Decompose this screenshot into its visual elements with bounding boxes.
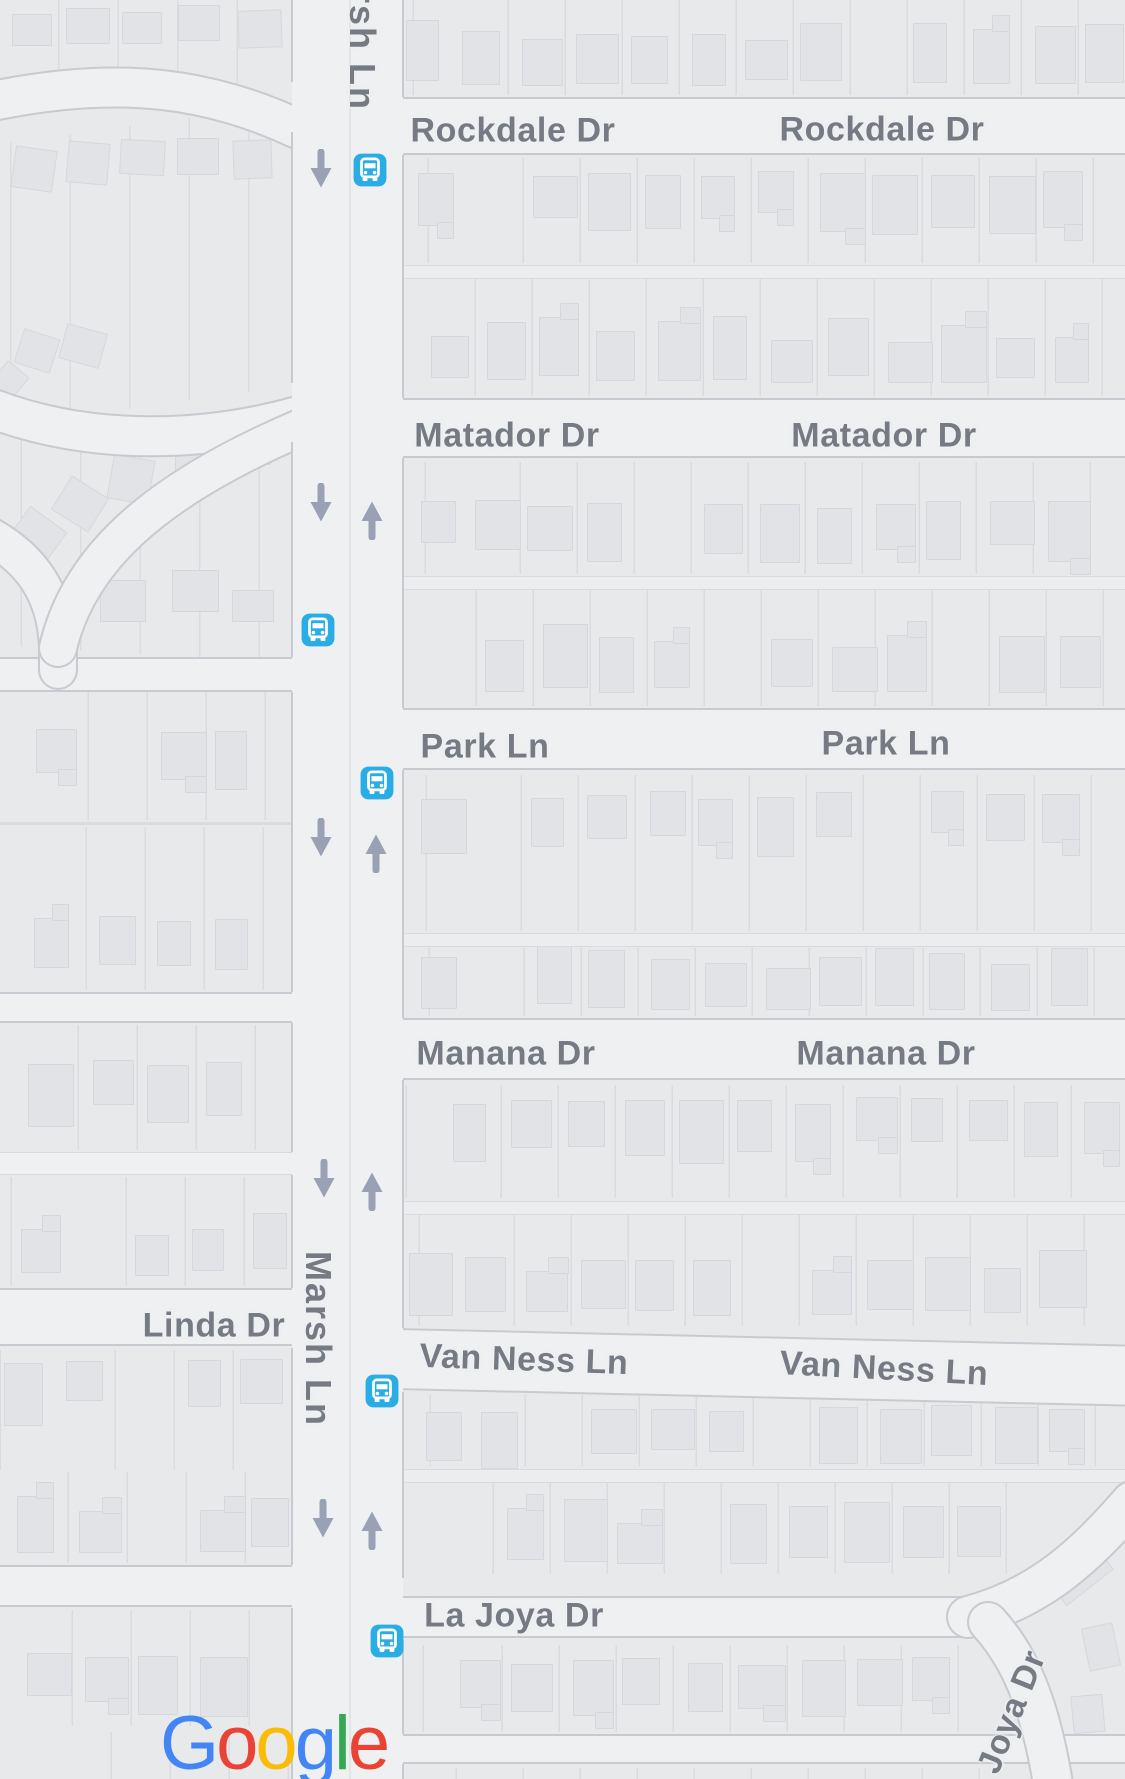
building-footprint bbox=[771, 639, 813, 687]
east-parcel-row bbox=[403, 948, 1125, 1016]
building-footprint bbox=[1039, 1250, 1087, 1308]
building-footprint bbox=[188, 1360, 221, 1407]
building-footprint bbox=[1062, 839, 1080, 856]
building-footprint bbox=[99, 916, 136, 965]
building-footprint bbox=[932, 1697, 950, 1714]
building-footprint bbox=[1035, 26, 1076, 84]
building-footprint bbox=[817, 508, 852, 565]
building-footprint bbox=[431, 336, 469, 378]
street-label-matador-dr: Matador Dr bbox=[414, 417, 599, 456]
building-footprint bbox=[178, 5, 220, 41]
building-footprint bbox=[857, 1659, 903, 1707]
building-footprint bbox=[36, 1482, 54, 1499]
building-footprint bbox=[175, 437, 225, 472]
building-footprint bbox=[4, 1363, 42, 1426]
street-label-rsh-ln: rsh Ln bbox=[341, 0, 383, 111]
building-footprint bbox=[907, 621, 926, 638]
building-footprint bbox=[844, 1502, 890, 1563]
building-footprint bbox=[157, 921, 190, 965]
building-footprint bbox=[673, 627, 690, 644]
building-footprint bbox=[560, 303, 579, 320]
building-footprint bbox=[28, 1064, 74, 1127]
building-footprint bbox=[232, 590, 274, 622]
road-casing bbox=[291, 1348, 293, 1565]
building-footprint bbox=[58, 769, 78, 786]
building-footprint bbox=[421, 957, 457, 1009]
west-parcel-row bbox=[0, 1472, 292, 1563]
building-footprint bbox=[828, 318, 869, 376]
building-footprint bbox=[617, 1523, 663, 1563]
building-footprint bbox=[996, 338, 1034, 378]
building-footprint bbox=[1055, 337, 1088, 383]
building-footprint bbox=[645, 175, 681, 229]
building-footprint bbox=[984, 1268, 1021, 1312]
building-footprint bbox=[912, 1657, 950, 1700]
building-footprint bbox=[122, 12, 162, 44]
building-footprint bbox=[453, 1104, 486, 1162]
building-footprint bbox=[931, 791, 964, 832]
building-footprint bbox=[475, 500, 521, 550]
building-footprint bbox=[813, 1158, 830, 1175]
building-footprint bbox=[1049, 1409, 1085, 1453]
building-footprint bbox=[929, 953, 965, 1010]
street-label-rockdale-dr: Rockdale Dr bbox=[779, 111, 984, 150]
google-logo-letter: o bbox=[255, 1701, 294, 1779]
road-casing bbox=[402, 1764, 404, 1779]
building-footprint bbox=[757, 797, 794, 857]
building-footprint bbox=[925, 1257, 971, 1311]
building-footprint bbox=[522, 39, 563, 86]
west-parcel-row bbox=[0, 1177, 292, 1286]
lane-centerline bbox=[349, 0, 351, 1779]
east-parcel-row bbox=[403, 158, 1125, 263]
building-footprint bbox=[969, 1100, 1008, 1141]
building-footprint bbox=[795, 1104, 831, 1163]
building-footprint bbox=[526, 1494, 544, 1511]
building-footprint bbox=[587, 795, 627, 839]
building-footprint bbox=[800, 23, 843, 82]
building-footprint bbox=[65, 140, 111, 186]
road-casing bbox=[291, 442, 293, 657]
road-segment bbox=[0, 657, 296, 692]
building-footprint bbox=[999, 636, 1045, 693]
building-footprint bbox=[856, 1097, 899, 1140]
building-footprint bbox=[845, 228, 867, 245]
building-footprint bbox=[948, 829, 964, 846]
building-footprint bbox=[692, 34, 726, 86]
building-footprint bbox=[897, 546, 916, 563]
direction-arrow-down bbox=[312, 1159, 336, 1199]
building-footprint bbox=[771, 340, 812, 383]
building-footprint bbox=[237, 9, 282, 49]
building-footprint bbox=[10, 145, 57, 192]
building-footprint bbox=[588, 173, 631, 231]
building-footprint bbox=[177, 138, 219, 175]
building-footprint bbox=[911, 1098, 943, 1142]
building-footprint bbox=[533, 176, 578, 219]
building-footprint bbox=[587, 503, 621, 563]
google-logo-letter: g bbox=[295, 1701, 334, 1779]
building-footprint bbox=[21, 1229, 60, 1273]
building-footprint bbox=[462, 31, 501, 85]
building-footprint bbox=[812, 1270, 853, 1314]
building-footprint bbox=[1048, 501, 1092, 563]
building-footprint bbox=[819, 957, 861, 1006]
building-footprint bbox=[1073, 323, 1089, 340]
east-parcel-row bbox=[403, 1480, 1010, 1574]
building-footprint bbox=[1081, 1622, 1121, 1672]
building-footprint bbox=[758, 171, 793, 213]
east-parcel-row bbox=[403, 0, 1125, 95]
building-footprint bbox=[819, 1407, 858, 1464]
street-label-van-ness-ln: Van Ness Ln bbox=[419, 1337, 629, 1383]
building-footprint bbox=[872, 175, 918, 235]
building-footprint bbox=[485, 640, 524, 692]
map-canvas[interactable]: Rockdale DrRockdale DrMatador DrMatador … bbox=[0, 0, 1125, 1779]
building-footprint bbox=[766, 968, 811, 1010]
block-alley bbox=[403, 933, 1125, 947]
building-footprint bbox=[437, 222, 454, 239]
building-footprint bbox=[426, 1412, 462, 1461]
building-footprint bbox=[635, 1260, 674, 1311]
road-casing bbox=[402, 0, 404, 97]
building-footprint bbox=[658, 321, 700, 381]
direction-arrow-down bbox=[311, 1499, 335, 1539]
building-footprint bbox=[576, 34, 619, 85]
building-footprint bbox=[599, 637, 634, 693]
street-label-la-joya-dr: La Joya Dr bbox=[424, 1597, 604, 1636]
west-parcel-row bbox=[0, 692, 292, 820]
road-casing bbox=[291, 132, 293, 383]
building-footprint bbox=[85, 1657, 129, 1702]
building-footprint bbox=[1024, 1102, 1058, 1158]
building-footprint bbox=[507, 1508, 544, 1560]
building-footprint bbox=[651, 959, 690, 1010]
building-footprint bbox=[941, 325, 987, 383]
building-footprint bbox=[192, 1229, 224, 1270]
road-segment bbox=[0, 992, 296, 1023]
road-segment bbox=[0, 1565, 296, 1607]
back-lot-line bbox=[0, 822, 292, 825]
building-footprint bbox=[108, 1698, 129, 1715]
building-footprint bbox=[903, 1506, 944, 1558]
building-footprint bbox=[119, 139, 166, 176]
road-casing bbox=[291, 1023, 293, 1152]
building-footprint bbox=[973, 29, 1009, 84]
direction-arrow-up bbox=[360, 1171, 384, 1211]
building-footprint bbox=[688, 1663, 723, 1712]
block-alley bbox=[403, 265, 1125, 279]
building-footprint bbox=[539, 317, 579, 377]
building-footprint bbox=[511, 1100, 552, 1148]
building-footprint bbox=[66, 1361, 102, 1401]
building-footprint bbox=[698, 799, 733, 846]
building-footprint bbox=[1070, 558, 1091, 575]
building-footprint bbox=[719, 215, 735, 232]
building-footprint bbox=[887, 635, 927, 693]
building-footprint bbox=[931, 175, 975, 227]
street-label-matador-dr: Matador Dr bbox=[791, 417, 976, 456]
building-footprint bbox=[709, 1411, 744, 1453]
building-footprint bbox=[816, 792, 852, 837]
building-footprint bbox=[206, 1062, 242, 1116]
building-footprint bbox=[548, 1257, 568, 1274]
building-footprint bbox=[991, 964, 1030, 1011]
building-footprint bbox=[913, 23, 947, 83]
street-label-linda-dr: Linda Dr bbox=[143, 1307, 286, 1346]
building-footprint bbox=[832, 647, 878, 692]
building-footprint bbox=[820, 173, 866, 231]
google-logo-letter: G bbox=[160, 1701, 216, 1779]
google-logo-letter: o bbox=[216, 1701, 255, 1779]
building-footprint bbox=[224, 1496, 246, 1513]
building-footprint bbox=[487, 322, 527, 380]
building-footprint bbox=[730, 1504, 766, 1564]
building-footprint bbox=[705, 963, 747, 1007]
building-footprint bbox=[460, 1660, 501, 1708]
east-parcel-row bbox=[403, 1645, 995, 1732]
building-footprint bbox=[680, 307, 700, 324]
building-footprint bbox=[888, 342, 933, 383]
building-footprint bbox=[622, 1658, 659, 1705]
building-footprint bbox=[79, 1511, 123, 1554]
building-footprint bbox=[989, 176, 1036, 234]
building-footprint bbox=[526, 1271, 568, 1313]
street-label-manana-dr: Manana Dr bbox=[416, 1035, 595, 1074]
building-footprint bbox=[465, 1257, 506, 1311]
west-parcel-row bbox=[0, 827, 292, 990]
building-footprint bbox=[596, 331, 634, 381]
building-footprint bbox=[693, 1260, 731, 1316]
building-footprint bbox=[481, 1412, 518, 1469]
building-footprint bbox=[995, 1407, 1038, 1464]
building-footprint bbox=[591, 1409, 637, 1454]
east-parcel-row bbox=[403, 1768, 1040, 1779]
west-parcel-row bbox=[0, 1350, 292, 1470]
direction-arrow-down bbox=[309, 149, 333, 189]
building-footprint bbox=[654, 641, 690, 688]
building-footprint bbox=[537, 946, 572, 1004]
building-footprint bbox=[650, 791, 687, 836]
google-logo[interactable]: Google bbox=[160, 1706, 387, 1779]
building-footprint bbox=[957, 1506, 1001, 1557]
building-footprint bbox=[251, 1498, 289, 1547]
building-footprint bbox=[716, 842, 733, 859]
building-footprint bbox=[66, 8, 110, 44]
building-footprint bbox=[880, 1409, 922, 1464]
bus-stop-icon[interactable] bbox=[364, 1373, 400, 1409]
building-footprint bbox=[12, 14, 52, 46]
building-footprint bbox=[409, 1253, 453, 1316]
building-footprint bbox=[100, 580, 146, 622]
east-parcel-row bbox=[403, 775, 1125, 931]
road-casing bbox=[291, 692, 293, 992]
building-footprint bbox=[185, 776, 207, 793]
building-footprint bbox=[745, 40, 789, 80]
building-footprint bbox=[543, 624, 588, 688]
building-footprint bbox=[200, 1510, 247, 1552]
building-footprint bbox=[789, 1506, 828, 1557]
building-footprint bbox=[253, 1213, 288, 1268]
building-footprint bbox=[588, 950, 625, 1008]
building-footprint bbox=[679, 1100, 724, 1164]
building-footprint bbox=[527, 506, 573, 551]
building-footprint bbox=[564, 1499, 608, 1562]
building-footprint bbox=[992, 15, 1009, 32]
building-footprint bbox=[738, 1665, 785, 1709]
building-footprint bbox=[421, 799, 467, 855]
bus-stop-icon[interactable] bbox=[359, 765, 395, 801]
building-footprint bbox=[147, 1065, 189, 1123]
building-footprint bbox=[1103, 1150, 1120, 1167]
building-footprint bbox=[878, 1137, 898, 1154]
building-footprint bbox=[704, 504, 743, 554]
direction-arrow-down bbox=[309, 818, 333, 858]
bus-stop-icon[interactable] bbox=[369, 1623, 405, 1659]
building-footprint bbox=[568, 1101, 605, 1147]
building-footprint bbox=[102, 1497, 123, 1514]
building-footprint bbox=[161, 732, 207, 780]
bus-stop-icon[interactable] bbox=[352, 152, 388, 188]
building-footprint bbox=[17, 1496, 54, 1553]
street-label-manana-dr: Manana Dr bbox=[796, 1035, 975, 1074]
bus-stop-icon[interactable] bbox=[300, 612, 336, 648]
building-footprint bbox=[595, 1712, 614, 1729]
building-footprint bbox=[1084, 1102, 1120, 1154]
building-footprint bbox=[240, 1359, 283, 1404]
building-footprint bbox=[42, 1215, 61, 1232]
west-parcel-row bbox=[0, 1025, 292, 1150]
road-segment bbox=[0, 1152, 296, 1175]
east-parcel-row bbox=[403, 590, 1125, 706]
building-footprint bbox=[737, 1100, 772, 1152]
east-parcel-row bbox=[403, 276, 1125, 396]
building-footprint bbox=[965, 311, 987, 328]
building-footprint bbox=[1085, 24, 1123, 84]
building-footprint bbox=[235, 433, 271, 465]
direction-arrow-up bbox=[360, 1510, 384, 1550]
building-footprint bbox=[1068, 1448, 1085, 1465]
building-footprint bbox=[232, 139, 272, 179]
building-footprint bbox=[106, 454, 155, 506]
direction-arrow-up bbox=[364, 833, 388, 873]
marsh-ln-road bbox=[292, 0, 403, 1779]
building-footprint bbox=[701, 176, 735, 220]
east-parcel-row bbox=[403, 1085, 1125, 1198]
building-footprint bbox=[876, 504, 916, 550]
direction-arrow-down bbox=[309, 483, 333, 523]
building-footprint bbox=[215, 731, 247, 790]
google-logo-letter: l bbox=[334, 1701, 348, 1779]
building-footprint bbox=[531, 798, 564, 848]
road-casing bbox=[402, 1080, 404, 1328]
building-footprint bbox=[36, 729, 77, 773]
building-footprint bbox=[481, 1704, 500, 1721]
building-footprint bbox=[777, 209, 794, 226]
road-casing bbox=[402, 458, 404, 708]
building-footprint bbox=[1042, 1538, 1114, 1606]
building-footprint bbox=[172, 570, 219, 612]
building-footprint bbox=[418, 173, 454, 225]
east-parcel-row bbox=[403, 1395, 1125, 1466]
building-footprint bbox=[926, 501, 961, 561]
direction-arrow-up bbox=[360, 500, 384, 540]
street-label-marsh-ln: Marsh Ln bbox=[297, 1251, 339, 1427]
road-casing bbox=[402, 155, 404, 398]
building-footprint bbox=[931, 1405, 972, 1456]
road-casing bbox=[291, 0, 293, 82]
road-casing bbox=[402, 770, 404, 1018]
building-footprint bbox=[760, 504, 800, 563]
building-footprint bbox=[573, 1660, 614, 1716]
building-footprint bbox=[27, 1653, 73, 1696]
building-footprint bbox=[867, 1260, 913, 1310]
street-label-park-ln: Park Ln bbox=[421, 728, 550, 767]
building-footprint bbox=[34, 918, 69, 968]
building-footprint bbox=[802, 1660, 846, 1716]
east-parcel-row bbox=[403, 1214, 1125, 1326]
building-footprint bbox=[511, 1664, 553, 1712]
building-footprint bbox=[1070, 1694, 1105, 1735]
block-alley bbox=[403, 1201, 1125, 1215]
building-footprint bbox=[406, 20, 439, 80]
east-parcel-row bbox=[403, 462, 1125, 574]
building-footprint bbox=[52, 904, 69, 921]
building-footprint bbox=[641, 1509, 663, 1526]
building-footprint bbox=[215, 919, 248, 970]
building-footprint bbox=[713, 316, 747, 380]
building-footprint bbox=[135, 1235, 168, 1276]
building-footprint bbox=[93, 1060, 134, 1105]
building-footprint bbox=[581, 1260, 626, 1308]
building-footprint bbox=[631, 36, 668, 84]
building-footprint bbox=[1051, 948, 1089, 1006]
street-label-rockdale-dr: Rockdale Dr bbox=[410, 112, 615, 151]
building-footprint bbox=[1060, 636, 1100, 688]
building-footprint bbox=[1043, 171, 1084, 228]
block-alley bbox=[403, 576, 1125, 590]
building-footprint bbox=[990, 501, 1035, 545]
building-footprint bbox=[1064, 224, 1083, 241]
building-footprint bbox=[875, 948, 914, 1006]
building-footprint bbox=[986, 794, 1025, 840]
building-footprint bbox=[1042, 794, 1080, 844]
building-footprint bbox=[833, 1256, 853, 1273]
building-footprint bbox=[651, 1409, 694, 1450]
google-logo-letter: e bbox=[348, 1701, 387, 1779]
road-casing bbox=[402, 1392, 404, 1578]
street-label-park-ln: Park Ln bbox=[822, 725, 951, 764]
road-casing bbox=[291, 1175, 293, 1288]
building-footprint bbox=[421, 501, 457, 543]
building-footprint bbox=[763, 1705, 785, 1722]
block-alley bbox=[403, 1469, 1125, 1483]
building-footprint bbox=[625, 1100, 666, 1156]
